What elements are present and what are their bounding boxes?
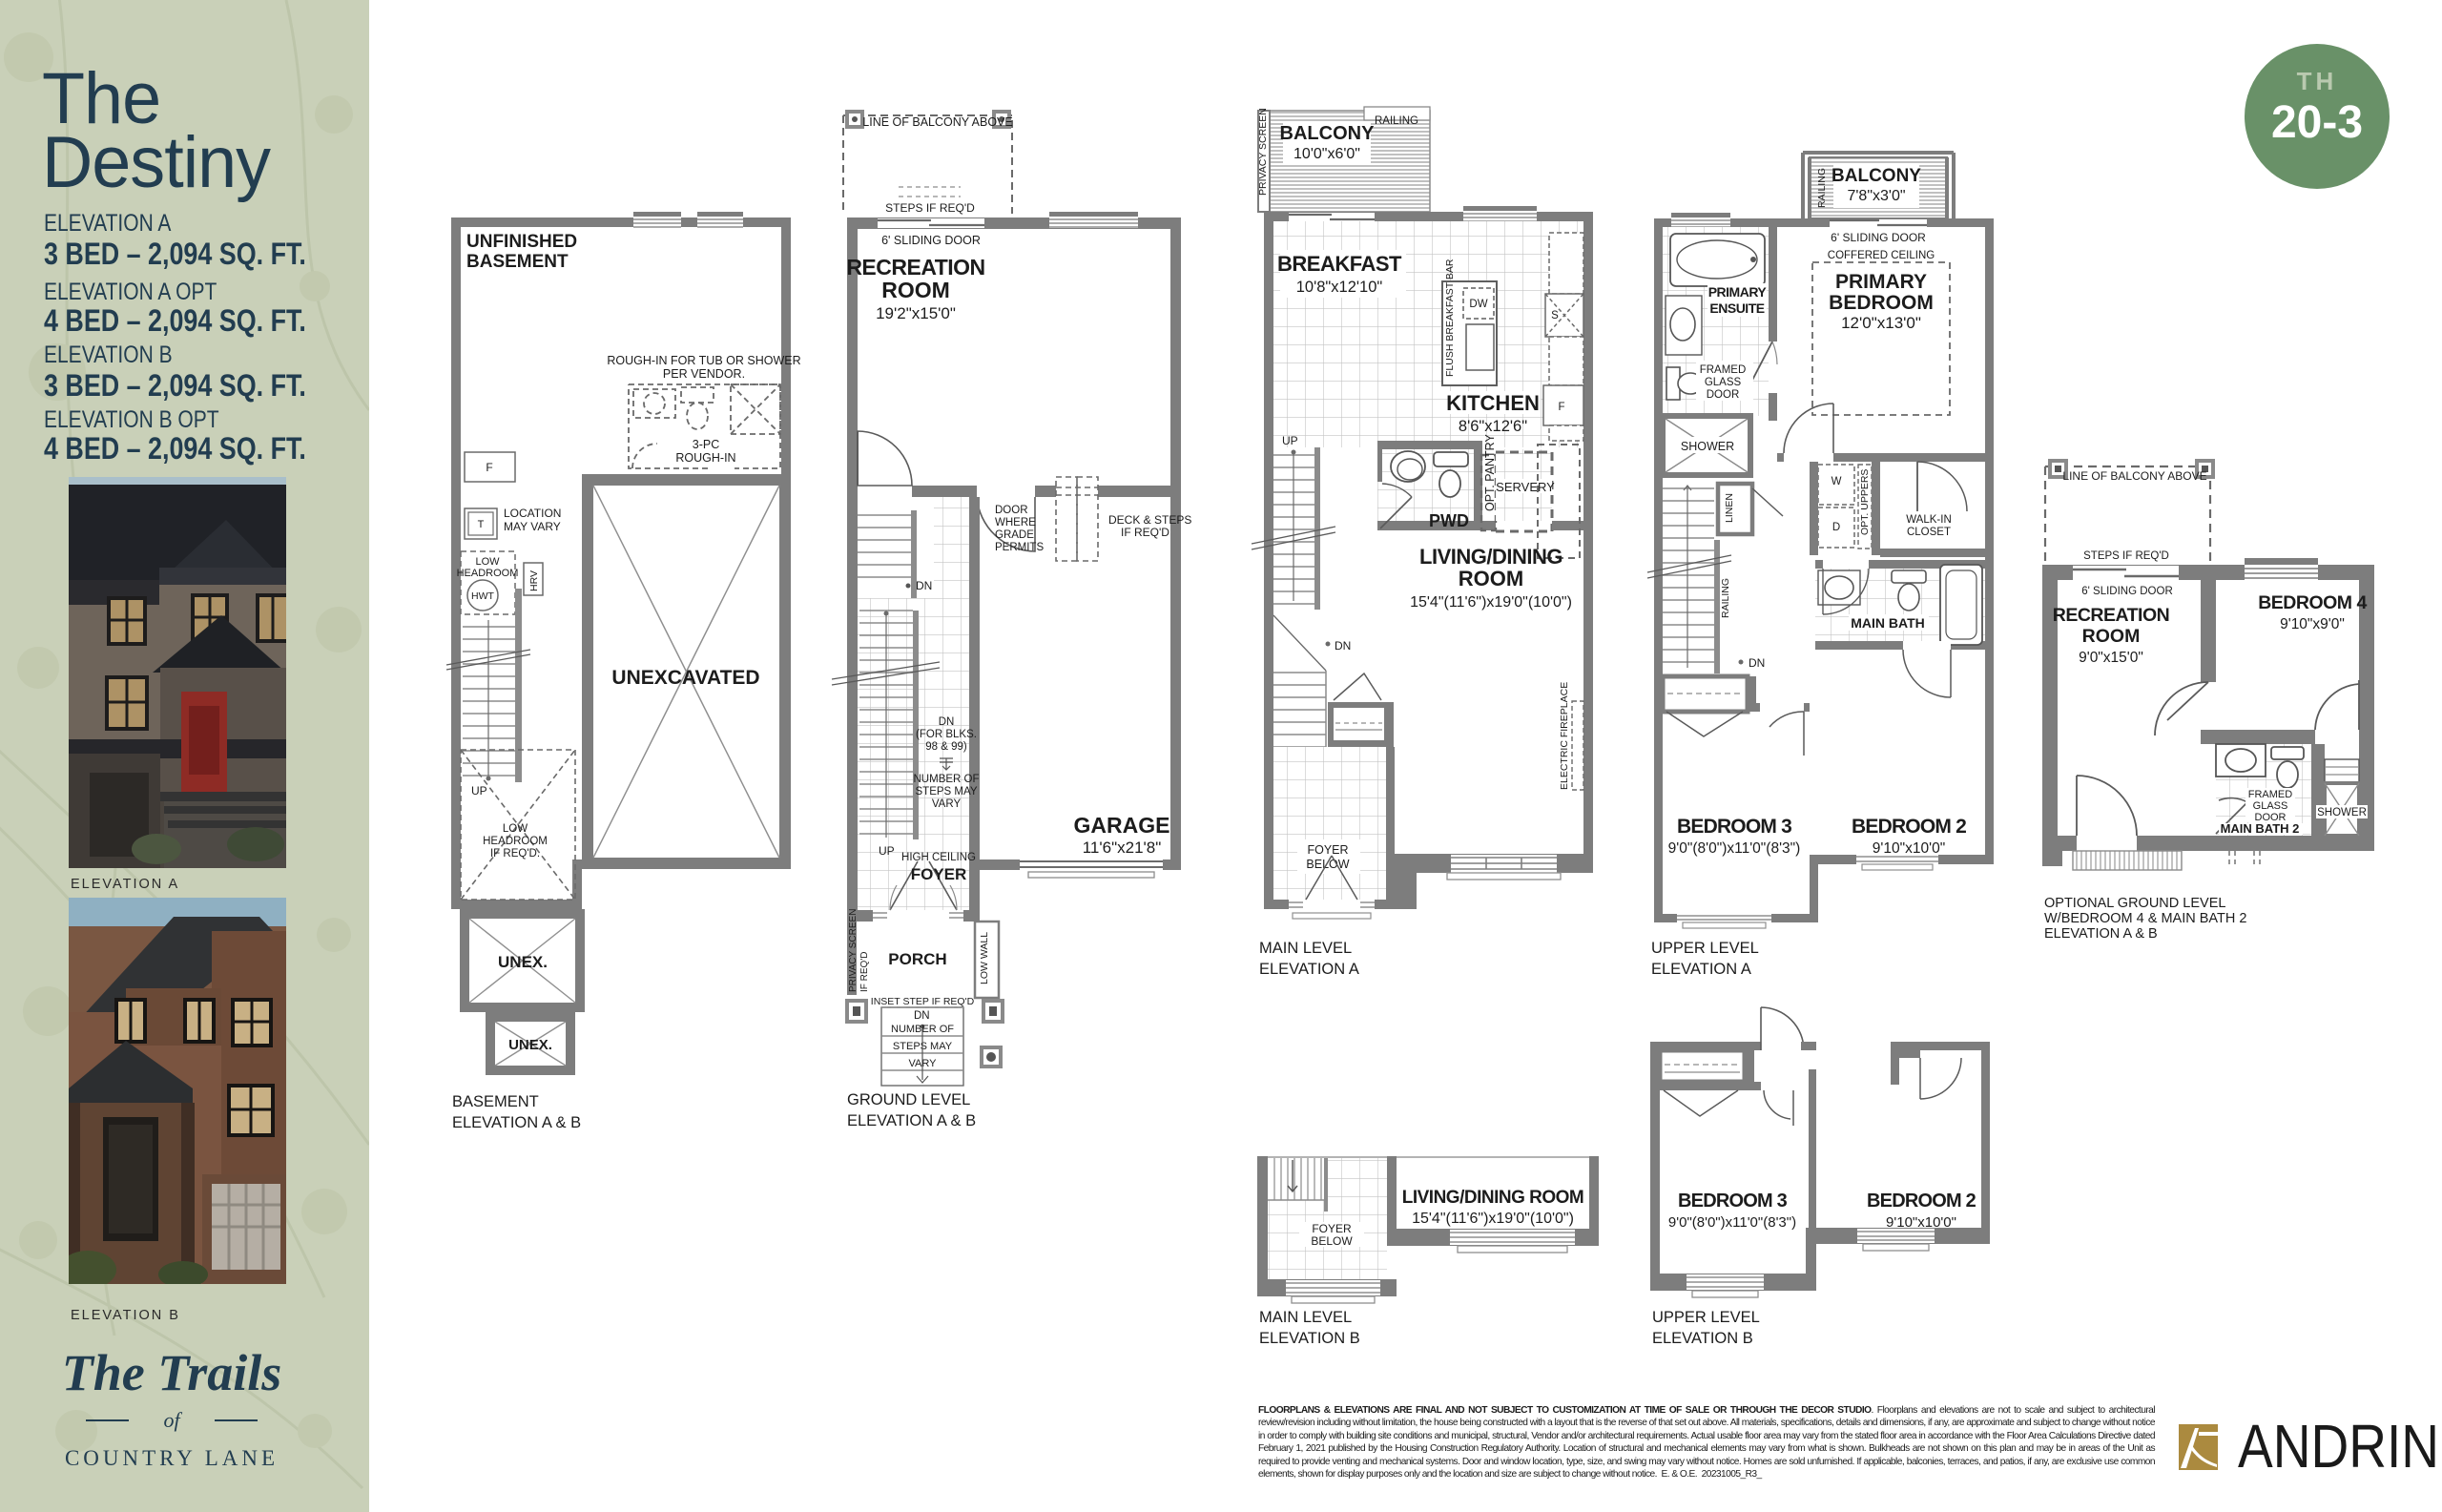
svg-text:UP: UP [1282, 434, 1298, 447]
svg-text:GRADE: GRADE [995, 529, 1034, 541]
svg-text:15'4"(11'6")x19'0"(10'0"): 15'4"(11'6")x19'0"(10'0") [1410, 594, 1572, 611]
svg-text:HEADROOM: HEADROOM [457, 568, 519, 579]
svg-text:HEADROOM: HEADROOM [483, 836, 548, 847]
svg-text:MAIN LEVEL: MAIN LEVEL [1259, 940, 1352, 957]
svg-text:BELOW: BELOW [1311, 1234, 1353, 1248]
svg-text:7'8"x3'0": 7'8"x3'0" [1847, 188, 1905, 204]
svg-text:NUMBER OF: NUMBER OF [914, 774, 980, 785]
svg-text:(FOR BLKS.: (FOR BLKS. [916, 729, 977, 740]
svg-text:ROUGH-IN: ROUGH-IN [675, 451, 735, 465]
svg-text:DECK & STEPS: DECK & STEPS [1108, 513, 1191, 527]
svg-text:PRIVACY SCREEN: PRIVACY SCREEN [848, 909, 859, 992]
svg-text:LOCATION: LOCATION [504, 507, 561, 520]
svg-text:UNFINISHED: UNFINISHED [466, 232, 577, 252]
svg-text:6' SLIDING DOOR: 6' SLIDING DOOR [2081, 586, 2173, 597]
svg-text:LOW WALL: LOW WALL [979, 932, 990, 984]
svg-text:RAILING: RAILING [1816, 168, 1828, 208]
svg-text:UPPER LEVEL: UPPER LEVEL [1651, 940, 1759, 957]
svg-text:SHOWER: SHOWER [2317, 807, 2367, 818]
svg-text:F: F [486, 461, 492, 474]
svg-text:PORCH: PORCH [888, 950, 946, 968]
svg-text:DN: DN [1335, 639, 1351, 652]
svg-text:BEDROOM 2: BEDROOM 2 [1867, 1191, 1976, 1212]
svg-text:3-PC: 3-PC [693, 438, 719, 451]
svg-text:19'2"x15'0": 19'2"x15'0" [876, 304, 956, 322]
svg-text:STEPS MAY: STEPS MAY [916, 786, 978, 797]
svg-text:PER VENDOR.: PER VENDOR. [663, 367, 745, 381]
svg-text:F: F [1558, 402, 1564, 413]
svg-text:COFFERED CEILING: COFFERED CEILING [1828, 250, 1935, 261]
svg-text:LINE OF BALCONY ABOVE: LINE OF BALCONY ABOVE [2062, 469, 2206, 483]
svg-text:UPPER LEVEL: UPPER LEVEL [1652, 1309, 1760, 1326]
svg-text:LINE OF BALCONY ABOVE: LINE OF BALCONY ABOVE [862, 115, 1012, 129]
svg-text:ROOM: ROOM [881, 278, 950, 302]
svg-text:WHERE: WHERE [995, 517, 1036, 528]
svg-text:OPT. PANTRY: OPT. PANTRY [1483, 434, 1497, 511]
svg-text:ENSUITE: ENSUITE [1709, 300, 1764, 316]
svg-text:BELOW: BELOW [1306, 858, 1349, 871]
svg-text:ELEVATION A & B: ELEVATION A & B [2044, 926, 2158, 942]
svg-text:9'0"x15'0": 9'0"x15'0" [2079, 650, 2143, 666]
svg-text:ELEVATION A: ELEVATION A [1259, 961, 1359, 978]
svg-text:MAIN BATH 2: MAIN BATH 2 [2221, 821, 2300, 836]
svg-text:FOYER: FOYER [1312, 1222, 1352, 1235]
svg-text:HIGH CEILING: HIGH CEILING [901, 852, 976, 863]
svg-text:6' SLIDING DOOR: 6' SLIDING DOOR [881, 234, 981, 247]
svg-text:UP: UP [879, 844, 895, 858]
svg-text:10'8"x12'10": 10'8"x12'10" [1296, 279, 1383, 296]
svg-text:9'10"x10'0": 9'10"x10'0" [1873, 840, 1945, 857]
svg-text:9'0"(8'0")x11'0"(8'3"): 9'0"(8'0")x11'0"(8'3") [1668, 840, 1801, 857]
svg-text:6' SLIDING DOOR: 6' SLIDING DOOR [1831, 231, 1926, 244]
svg-text:ELEVATION A: ELEVATION A [1651, 961, 1751, 978]
svg-text:MAIN BATH: MAIN BATH [1851, 615, 1925, 631]
svg-text:RECREATION: RECREATION [846, 255, 984, 280]
svg-text:DOOR: DOOR [995, 505, 1028, 516]
svg-text:PRIMARY: PRIMARY [1835, 271, 1927, 293]
svg-text:BALCONY: BALCONY [1280, 123, 1376, 144]
svg-text:FLUSH BREAKFAST BAR: FLUSH BREAKFAST BAR [1444, 259, 1456, 377]
svg-text:LOW: LOW [503, 823, 528, 835]
svg-text:PWD: PWD [1429, 511, 1469, 530]
svg-text:GLASS: GLASS [2253, 800, 2288, 812]
svg-text:T: T [478, 519, 485, 530]
svg-text:IF REQ'D.: IF REQ'D. [490, 848, 540, 860]
svg-text:DN: DN [916, 579, 932, 592]
svg-text:BEDROOM: BEDROOM [1829, 292, 1934, 314]
svg-text:FRAMED: FRAMED [2248, 789, 2293, 800]
svg-text:10'0"x6'0": 10'0"x6'0" [1293, 146, 1360, 162]
svg-text:ELECTRIC FIREPLACE: ELECTRIC FIREPLACE [1559, 682, 1570, 790]
svg-text:UNEX.: UNEX. [508, 1037, 552, 1053]
svg-text:BASEMENT: BASEMENT [452, 1093, 539, 1110]
svg-text:W/BEDROOM 4 & MAIN BATH 2: W/BEDROOM 4 & MAIN BATH 2 [2044, 911, 2246, 926]
svg-text:GARAGE: GARAGE [1074, 813, 1170, 838]
svg-text:PRIVACY SCREEN: PRIVACY SCREEN [1257, 108, 1269, 196]
svg-text:HRV: HRV [528, 570, 540, 591]
svg-text:GLASS: GLASS [1705, 377, 1742, 388]
svg-text:FRAMED: FRAMED [1700, 364, 1747, 376]
svg-text:IF REQ'D: IF REQ'D [859, 952, 870, 992]
svg-text:UNEX.: UNEX. [498, 953, 548, 971]
svg-text:9'0"(8'0")x11'0"(8'3"): 9'0"(8'0")x11'0"(8'3") [1668, 1214, 1796, 1231]
svg-text:MAY VARY: MAY VARY [504, 520, 561, 533]
svg-text:RECREATION: RECREATION [2053, 605, 2169, 626]
svg-text:98 & 99): 98 & 99) [925, 741, 967, 753]
svg-text:LINEN: LINEN [1724, 493, 1735, 523]
svg-text:STEPS IF REQ'D: STEPS IF REQ'D [2083, 550, 2169, 562]
svg-text:BEDROOM 3: BEDROOM 3 [1677, 816, 1791, 838]
svg-text:VARY: VARY [932, 798, 962, 810]
svg-text:LIVING/DINING: LIVING/DINING [1419, 545, 1562, 569]
svg-text:HWT: HWT [471, 590, 494, 602]
svg-text:BEDROOM 2: BEDROOM 2 [1852, 816, 1966, 838]
svg-text:12'0"x13'0": 12'0"x13'0" [1841, 314, 1921, 332]
svg-text:RAILING: RAILING [1375, 115, 1418, 127]
svg-text:ROOM: ROOM [1459, 567, 1523, 590]
svg-text:MAIN LEVEL: MAIN LEVEL [1259, 1309, 1352, 1326]
svg-text:D: D [1832, 522, 1840, 533]
svg-text:ROOM: ROOM [2082, 626, 2141, 647]
svg-text:BEDROOM 3: BEDROOM 3 [1678, 1191, 1788, 1212]
svg-text:9'10"x9'0": 9'10"x9'0" [2280, 616, 2345, 632]
svg-text:LOW: LOW [475, 556, 500, 568]
svg-text:LIVING/DINING ROOM: LIVING/DINING ROOM [1402, 1188, 1584, 1208]
svg-text:BALCONY: BALCONY [1831, 166, 1921, 186]
svg-text:RAILING: RAILING [1720, 578, 1731, 618]
svg-text:IF REQ'D: IF REQ'D [1121, 526, 1169, 539]
svg-text:ELEVATION B: ELEVATION B [1652, 1330, 1753, 1347]
svg-text:DW: DW [1469, 299, 1487, 310]
svg-text:INSET STEP IF REQ'D: INSET STEP IF REQ'D [871, 996, 975, 1007]
svg-text:OPTIONAL GROUND LEVEL: OPTIONAL GROUND LEVEL [2044, 896, 2225, 911]
svg-text:ELEVATION A & B: ELEVATION A & B [452, 1114, 581, 1131]
svg-text:11'6"x21'8": 11'6"x21'8" [1083, 839, 1162, 857]
svg-text:UNEXCAVATED: UNEXCAVATED [611, 667, 759, 689]
svg-text:S: S [1551, 310, 1559, 321]
svg-text:DN: DN [939, 716, 955, 728]
svg-text:DOOR: DOOR [1707, 389, 1740, 401]
svg-text:SHOWER: SHOWER [1681, 440, 1734, 453]
svg-text:ELEVATION A & B: ELEVATION A & B [847, 1112, 976, 1129]
svg-text:FOYER: FOYER [911, 865, 967, 883]
svg-text:UP: UP [471, 784, 487, 797]
svg-text:GROUND LEVEL: GROUND LEVEL [847, 1091, 970, 1108]
svg-text:CLOSET: CLOSET [1907, 527, 1951, 538]
svg-text:15'4"(11'6")x19'0"(10'0"): 15'4"(11'6")x19'0"(10'0") [1412, 1211, 1574, 1227]
svg-text:DN: DN [1749, 656, 1765, 670]
svg-text:8'6"x12'6": 8'6"x12'6" [1459, 418, 1527, 435]
svg-text:PERMITS: PERMITS [995, 542, 1044, 553]
svg-text:BREAKFAST: BREAKFAST [1277, 252, 1402, 276]
svg-text:WALK-IN: WALK-IN [1906, 514, 1952, 526]
svg-text:KITCHEN: KITCHEN [1446, 391, 1540, 415]
svg-text:PRIMARY: PRIMARY [1708, 284, 1768, 300]
svg-text:BASEMENT: BASEMENT [466, 252, 569, 272]
svg-text:FOYER: FOYER [1307, 843, 1348, 857]
svg-text:BEDROOM 4: BEDROOM 4 [2258, 592, 2367, 613]
svg-text:ROUGH-IN FOR TUB OR SHOWER: ROUGH-IN FOR TUB OR SHOWER [607, 354, 800, 367]
svg-text:W: W [1831, 476, 1842, 487]
svg-text:SERVERY: SERVERY [1496, 480, 1555, 494]
svg-text:STEPS IF REQ'D: STEPS IF REQ'D [885, 201, 975, 215]
svg-text:OPT. UPPERS: OPT. UPPERS [1859, 469, 1871, 535]
svg-text:DN: DN [914, 1010, 930, 1022]
svg-text:ELEVATION B: ELEVATION B [1259, 1330, 1360, 1347]
